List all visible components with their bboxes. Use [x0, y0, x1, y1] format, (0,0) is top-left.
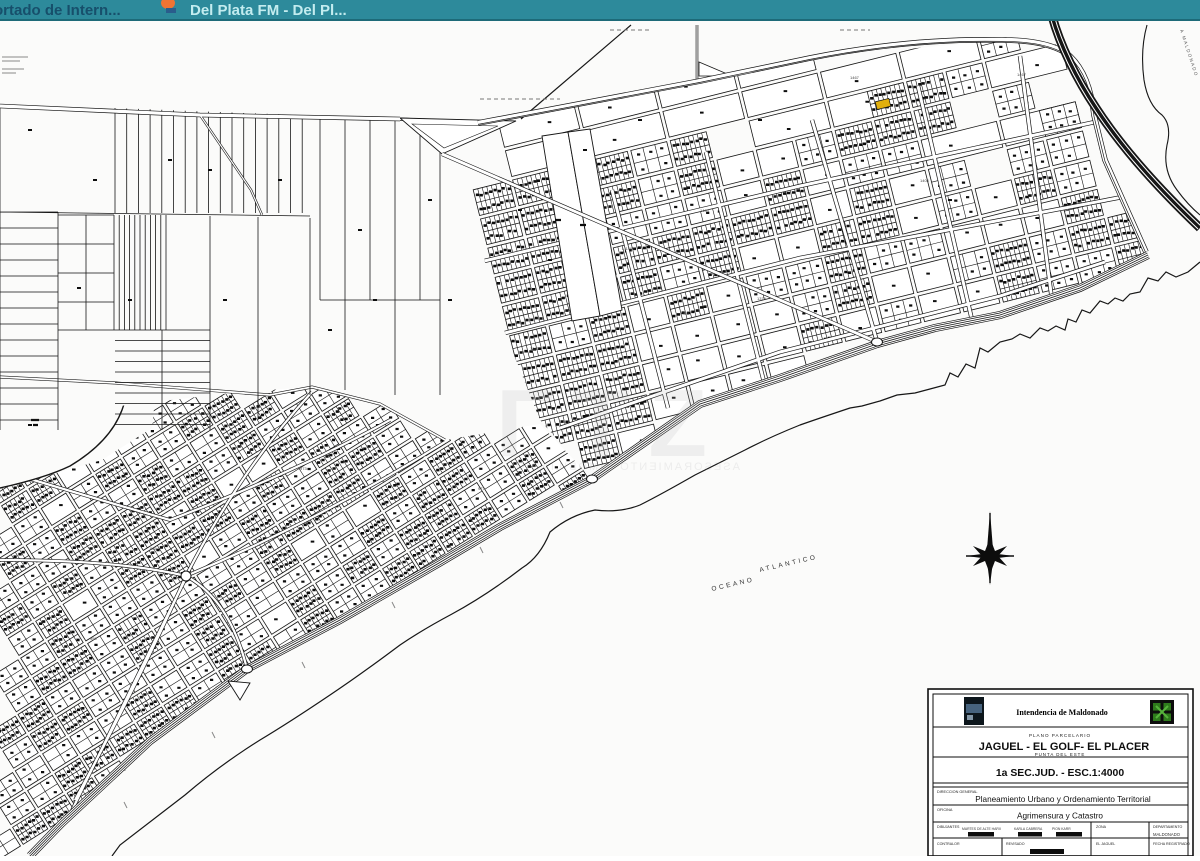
svg-text:1406: 1406 [920, 178, 930, 183]
svg-text:DIBUJANTES: DIBUJANTES [937, 825, 960, 829]
svg-text:KARLA CABRERA: KARLA CABRERA [1014, 827, 1043, 831]
svg-text:FECHA REGISTRADO: FECHA REGISTRADO [1153, 842, 1190, 846]
svg-text:1379: 1379 [757, 296, 767, 301]
svg-text:1383: 1383 [680, 311, 690, 316]
svg-text:DEPARTAMENTO: DEPARTAMENTO [1153, 825, 1182, 829]
svg-text:MARTES DE ALTE HARII: MARTES DE ALTE HARII [962, 827, 1001, 831]
svg-text:1467: 1467 [1017, 72, 1027, 77]
svg-text:973: 973 [300, 466, 307, 471]
svg-text:Intendencia de Maldonado: Intendencia de Maldonado [1016, 708, 1108, 717]
svg-text:965: 965 [150, 546, 157, 551]
svg-text:EL JAGUEL: EL JAGUEL [1096, 842, 1115, 846]
svg-text:Planeamiento Urbano y Ordenami: Planeamiento Urbano y Ordenamiento Terri… [975, 795, 1151, 804]
svg-text:Agrimensura y Catastro: Agrimensura y Catastro [1017, 812, 1103, 821]
svg-text:REVISADO: REVISADO [1006, 842, 1025, 846]
svg-text:CONTRALOR: CONTRALOR [937, 842, 960, 846]
svg-text:OFICINA: OFICINA [937, 808, 953, 812]
svg-text:MALDONADO: MALDONADO [1153, 832, 1181, 837]
svg-text:1380: 1380 [530, 346, 540, 351]
svg-text:PUNTA DEL ESTE: PUNTA DEL ESTE [1035, 752, 1086, 757]
svg-text:1405: 1405 [700, 208, 710, 213]
svg-text:977: 977 [478, 486, 485, 491]
svg-text:DIRECCION GENERAL: DIRECCION GENERAL [937, 790, 978, 794]
svg-text:ASESORAMIENTO INMOBILIARIO: ASESORAMIENTO INMOBILIARIO [514, 461, 740, 473]
svg-text:PLANO PARCELARIO: PLANO PARCELARIO [1029, 733, 1091, 738]
svg-text:1a SEC.JUD. - ESC.1:4000: 1a SEC.JUD. - ESC.1:4000 [996, 768, 1124, 779]
svg-text:1467: 1467 [850, 75, 860, 80]
svg-text:ZONA: ZONA [1096, 825, 1107, 829]
svg-text:L-1405: L-1405 [622, 246, 635, 251]
svg-text:959: 959 [90, 636, 97, 641]
svg-text:PION KARR: PION KARR [1052, 827, 1071, 831]
